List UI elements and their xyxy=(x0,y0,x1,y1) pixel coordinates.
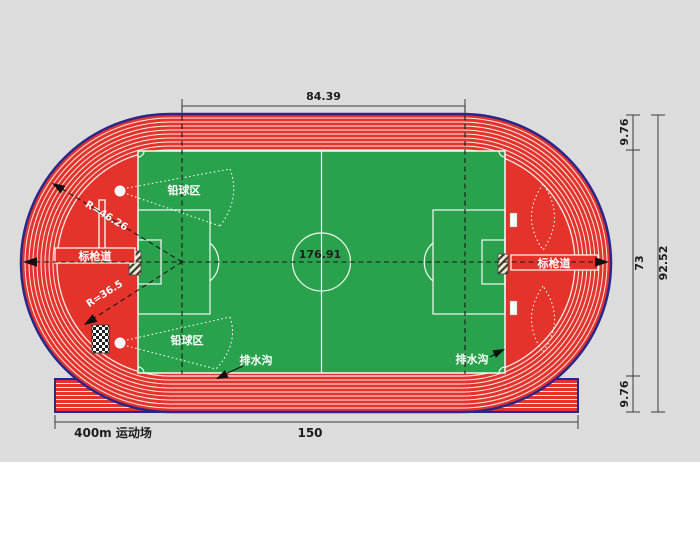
dim-overall-width: 92.52 xyxy=(657,246,670,281)
dim-infield-width: 73 xyxy=(633,255,646,270)
dim-track-width-top: 9.76 xyxy=(618,118,631,145)
dim-overall-length: 176.91 xyxy=(299,248,341,261)
dim-top-straight: 84.39 xyxy=(306,90,341,103)
stop-board-upper xyxy=(510,213,517,227)
shot-put-label-bottom: 铅球区 xyxy=(171,333,204,347)
shot-put-circle-bottom xyxy=(115,338,126,349)
checkered-marker xyxy=(92,325,109,353)
site-name-label: 400m 运动场 xyxy=(74,426,152,440)
shot-put-circle-top xyxy=(115,186,126,197)
shot-put-label-top: 铅球区 xyxy=(168,183,201,197)
hatched-ramp-right xyxy=(498,254,508,274)
javelin-lane-label-left: 标枪道 xyxy=(78,249,112,263)
dim-track-width-bottom: 9.76 xyxy=(618,380,631,407)
javelin-lane-label-right: 标枪道 xyxy=(537,256,571,270)
track-diagram-page: 84.39 176.91 9.76 73 92.52 9.76 150 400m… xyxy=(0,0,700,544)
dim-bottom-length: 150 xyxy=(297,426,322,440)
stadium-plan-drawing: 84.39 176.91 9.76 73 92.52 9.76 150 400m… xyxy=(0,0,700,544)
stop-board-lower xyxy=(510,301,517,315)
drain-label-left: 排水沟 xyxy=(240,353,273,367)
drain-label-right: 排水沟 xyxy=(456,352,489,366)
